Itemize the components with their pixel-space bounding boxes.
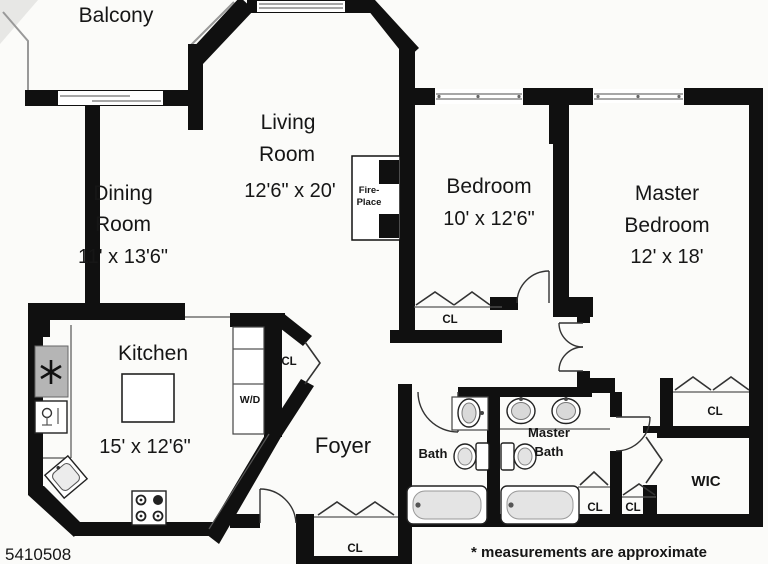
label-kitchen-closet: CL: [281, 356, 296, 368]
label-master-bath-closet: CL: [587, 502, 602, 514]
master-bath-door: [616, 417, 650, 451]
fireplace-label-2: Place: [357, 197, 382, 208]
label-master-1: Master: [635, 182, 699, 205]
master-toilet-icon: [501, 443, 536, 470]
master-bedroom-french-doors: [559, 323, 583, 371]
listing-id: 5410508: [5, 545, 71, 564]
master-tub-icon: [501, 486, 579, 524]
refrigerator-icon: [35, 346, 68, 397]
photo-corner-artifact: [0, 0, 38, 44]
label-master-2: Bedroom: [624, 214, 709, 237]
washer-dryer-closet: [233, 327, 264, 434]
kitchen-sink-icon: [45, 456, 87, 498]
label-living-dims: 12'6" x 20': [244, 180, 335, 202]
kitchen-island: [122, 374, 174, 422]
wic-bifold-door: [646, 437, 662, 483]
stove-icon: [132, 491, 166, 525]
label-kitchen: Kitchen: [118, 342, 188, 365]
floor-plan-drawing: Fire- Place: [0, 0, 768, 564]
bedroom-window: [435, 89, 523, 104]
bath-sink-icon: [452, 397, 488, 430]
label-dining-1: Dining: [93, 182, 153, 205]
label-living-1: Living: [261, 111, 316, 134]
kitchen-closet-door: [305, 342, 320, 384]
label-balcony: Balcony: [79, 4, 154, 27]
bedroom-closet-bifold: [414, 292, 502, 307]
label-wic: WIC: [691, 473, 720, 490]
fireplace: Fire- Place: [352, 156, 400, 240]
label-washer-dryer: W/D: [240, 394, 261, 406]
label-dining-dims: 11' x 13'6": [78, 246, 168, 268]
bath-tub-icon: [407, 486, 487, 524]
label-foyer: Foyer: [315, 433, 371, 458]
bay-window: [257, 1, 345, 12]
label-bath: Bath: [419, 446, 448, 461]
label-bedroom-dims: 10' x 12'6": [443, 208, 534, 230]
label-bedroom: Bedroom: [446, 175, 531, 198]
master-closet-bifold: [673, 377, 749, 392]
dishwasher-icon: [35, 401, 67, 433]
label-hall-closet: CL: [625, 502, 640, 514]
label-dining-2: Room: [95, 213, 151, 236]
label-living-2: Room: [259, 143, 315, 166]
walls: [25, 0, 763, 564]
balcony-sliding-door: [58, 91, 163, 105]
label-master-bath-1: Master: [528, 425, 570, 440]
measurements-disclaimer: * measurements are approximate: [471, 544, 707, 561]
entry-door: [260, 489, 296, 523]
bath-toilet-icon: [454, 443, 489, 470]
fireplace-label-1: Fire-: [359, 185, 380, 196]
bedroom-door: [517, 271, 549, 303]
label-foyer-closet: CL: [347, 543, 362, 555]
floor-plan-page: Fire- Place: [0, 0, 768, 564]
label-master-dims: 12' x 18': [630, 246, 703, 268]
label-kitchen-dims: 15' x 12'6": [99, 436, 190, 458]
master-bedroom-window: [593, 89, 684, 103]
label-bedroom-closet: CL: [442, 314, 457, 326]
label-master-closet: CL: [707, 406, 722, 418]
label-master-bath-2: Bath: [535, 444, 564, 459]
foyer-closet-bifold: [314, 502, 398, 517]
